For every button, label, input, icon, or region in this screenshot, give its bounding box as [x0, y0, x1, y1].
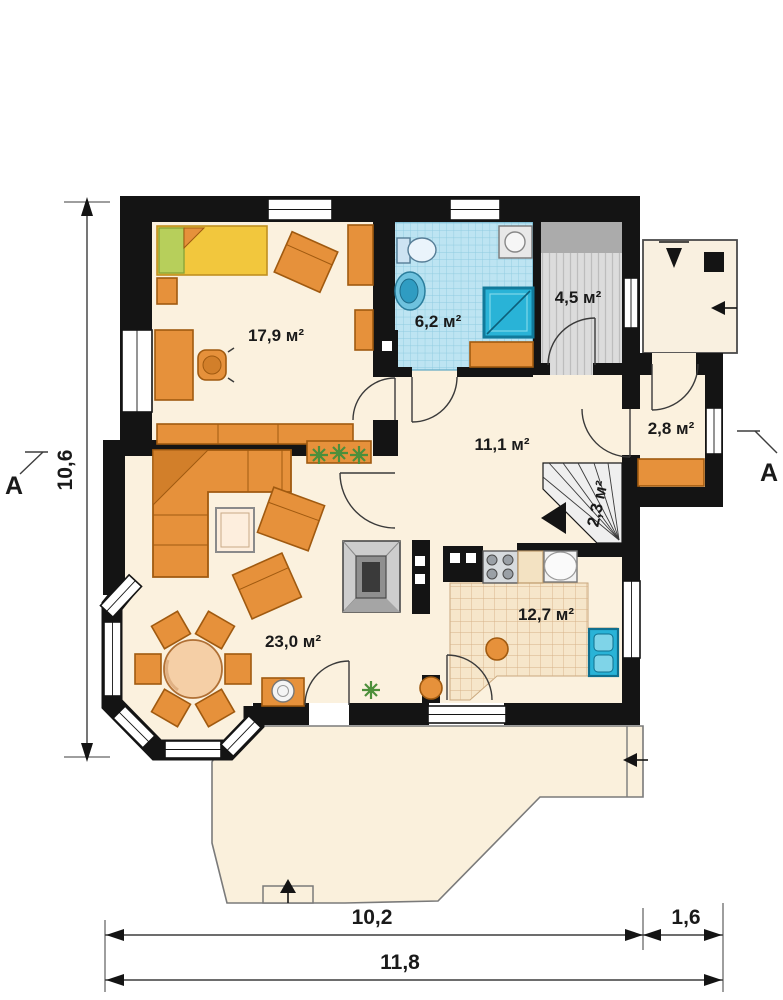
window-bay-west	[104, 622, 121, 696]
bathroom-sink	[395, 272, 425, 310]
duct-opening	[382, 341, 392, 351]
window-kitchen-east	[623, 581, 640, 658]
hall-area-label: 11,1 м²	[474, 435, 529, 454]
window-kitchen-south	[428, 706, 506, 723]
section-marker-right	[737, 431, 777, 453]
bathroom-area-label: 6,2 м²	[415, 312, 462, 331]
vestibule-cabinet	[638, 459, 704, 486]
wall-post-hall	[373, 420, 398, 456]
wall-south-2	[349, 703, 429, 725]
dimension-side-extension-label: 1,6	[671, 906, 700, 929]
dimension-bottom-main	[105, 903, 723, 992]
bedroom-area-label: 17,9 м²	[248, 326, 304, 345]
dimension-height-label: 10,6	[54, 450, 77, 491]
stool	[420, 677, 442, 699]
vestibule-area-label: 2,8 м²	[648, 419, 695, 438]
wall-south-3	[504, 703, 640, 725]
fireplace-niche-1	[415, 556, 425, 566]
terrace-deck	[212, 726, 643, 903]
plant-shelf	[307, 441, 371, 464]
section-letter-left: A	[5, 472, 23, 500]
wall-north	[120, 196, 640, 222]
planter-stand	[262, 678, 304, 706]
window-bay-south	[165, 741, 221, 758]
wall-vestibule-south	[622, 487, 723, 507]
entry-porch	[643, 240, 737, 353]
kitchen-sink	[589, 629, 618, 676]
window-bedroom-north	[268, 199, 332, 220]
wall-bathroom-south-2	[457, 367, 533, 377]
fridge	[544, 551, 577, 582]
dimension-total-width-label: 11,8	[380, 951, 420, 974]
desk	[155, 330, 193, 400]
dimension-front-width-label: 10,2	[352, 906, 393, 929]
wall-utility-south-2	[593, 363, 622, 375]
fireplace-niche-2	[415, 574, 425, 584]
dining-chair	[135, 654, 161, 684]
floor-plan-canvas: 17,9 м² 6,2 м² 4,5 м² 11,1 м² 2,8 м² 2,3…	[0, 0, 783, 1000]
coffee-table	[216, 508, 254, 552]
washing-machine	[499, 226, 532, 258]
wall-hall-vestibule-1	[622, 375, 640, 409]
stove	[483, 551, 518, 583]
floor-plan-page: 17,9 м² 6,2 м² 4,5 м² 11,1 м² 2,8 м² 2,3…	[0, 0, 783, 1000]
fireplace	[343, 541, 400, 612]
wall-porch-vestibule-1	[640, 353, 652, 375]
window-bathroom-north	[450, 199, 500, 220]
window-vestibule-east	[706, 408, 722, 454]
kitchen-worktop	[518, 551, 543, 583]
nightstand	[157, 278, 177, 304]
window-bedroom-west	[122, 330, 152, 412]
dining-chair	[225, 654, 251, 684]
window-utility-east	[624, 278, 638, 328]
bed-pillow	[159, 228, 184, 273]
dresser	[355, 310, 373, 350]
toilet	[397, 238, 436, 263]
section-letter-right: A	[760, 459, 778, 487]
dining-table	[164, 640, 222, 698]
utility-area-label: 4,5 м²	[555, 288, 602, 307]
dimension-bottom-total	[105, 974, 723, 986]
porch-column	[704, 252, 724, 272]
bathroom-cabinet	[470, 342, 533, 367]
section-marker-left	[20, 452, 48, 474]
kitchen-counter	[443, 546, 483, 582]
kitchen-area-label: 12,7 м²	[518, 605, 574, 624]
wardrobe	[348, 225, 373, 285]
terrace	[212, 726, 648, 903]
living-area-label: 23,0 м²	[265, 632, 321, 651]
wall-porch-vestibule-2	[696, 353, 723, 375]
stool	[486, 638, 508, 660]
shower	[484, 288, 533, 337]
wall-west-lower	[103, 440, 125, 595]
